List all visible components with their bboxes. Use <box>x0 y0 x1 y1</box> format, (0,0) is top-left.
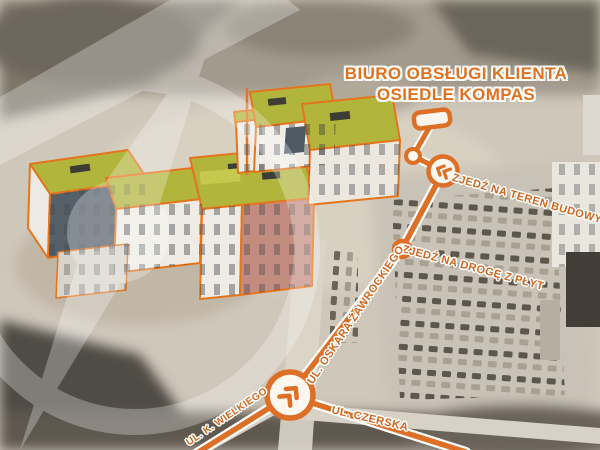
map-canvas: BIURO OBSŁUGI KLIENTA OSIEDLE KOMPAS ZJE… <box>0 0 600 450</box>
office-sign-marker <box>413 109 451 129</box>
office-title-line2: OSIEDLE KOMPAS <box>336 84 576 105</box>
office-title-line1: BIURO OBSŁUGI KLIENTA <box>336 63 576 84</box>
route-lines <box>197 128 466 450</box>
waypoint-dot-top <box>406 149 420 163</box>
office-title: BIURO OBSŁUGI KLIENTA OSIEDLE KOMPAS <box>336 63 576 105</box>
route-casing <box>197 128 466 450</box>
